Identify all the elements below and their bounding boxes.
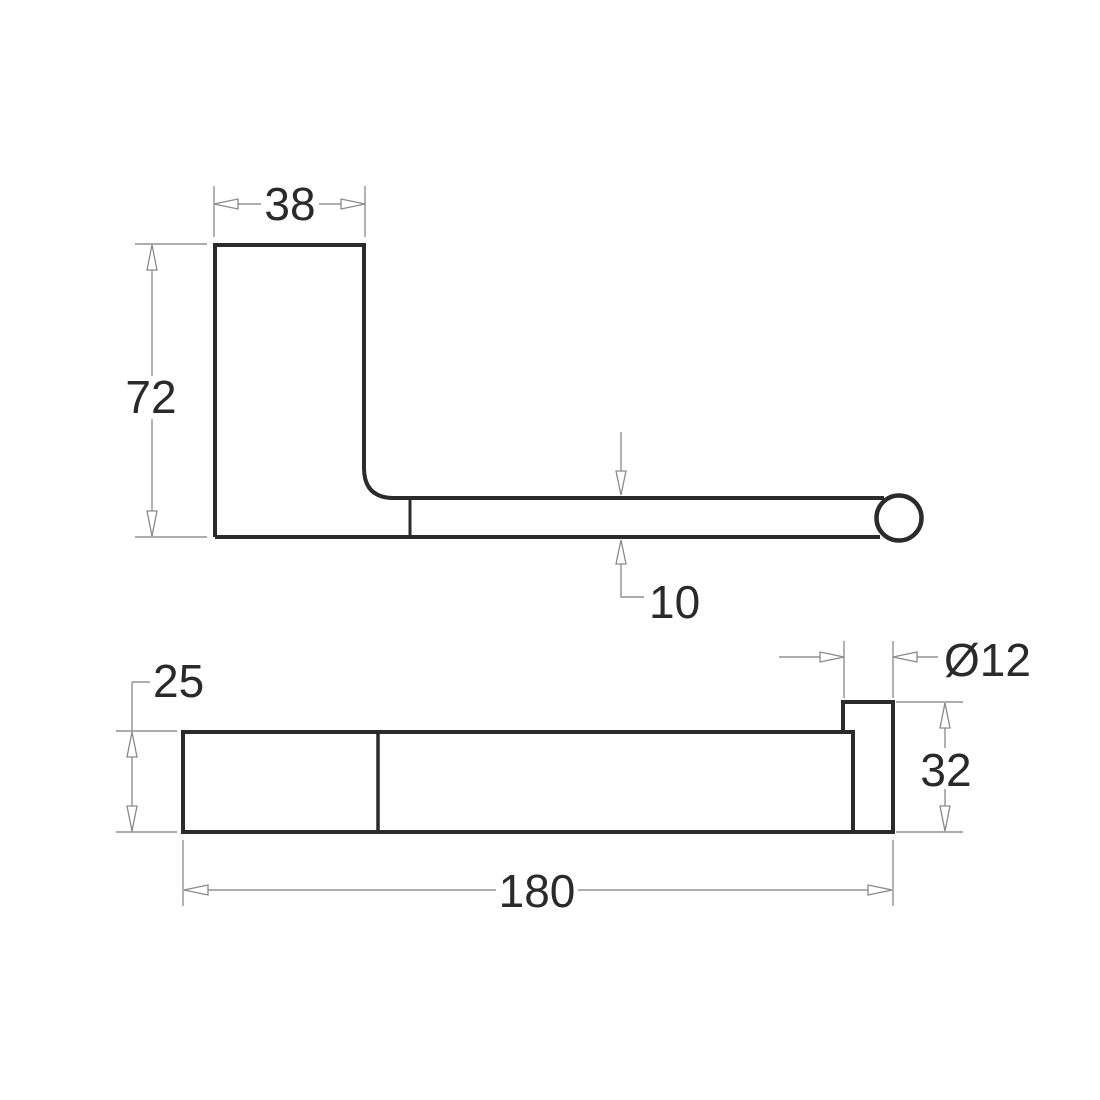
arrowhead-down xyxy=(127,806,137,831)
arrowhead-down xyxy=(940,806,950,831)
dim-end-post-height: 32 xyxy=(896,702,972,832)
technical-drawing: 38 72 10 xyxy=(0,0,1100,1100)
dim-label-arm-thickness: 10 xyxy=(649,576,700,628)
arrowhead-up xyxy=(147,245,157,270)
dim-label-plate-height: 72 xyxy=(125,371,176,423)
arrowhead-left xyxy=(214,199,238,209)
plan-view: 25 180 32 xyxy=(116,634,1031,917)
side-view: 38 72 10 xyxy=(125,178,921,628)
arrowhead-up xyxy=(940,703,950,728)
drawing-canvas: 38 72 10 xyxy=(0,0,1100,1100)
end-post-outline xyxy=(843,702,893,832)
rail-end-circle xyxy=(877,496,922,541)
arrowhead-right xyxy=(341,199,365,209)
plan-view-part xyxy=(183,702,893,832)
dim-label-plate-width: 38 xyxy=(264,178,315,230)
arrowhead-down xyxy=(616,471,626,495)
leader-line xyxy=(621,564,644,597)
arrowhead-right xyxy=(820,652,844,662)
arrowhead-up xyxy=(127,732,137,757)
dim-overall-length: 180 xyxy=(183,840,893,917)
dim-end-post-diameter: Ø12 xyxy=(779,634,1031,698)
arrowhead-left xyxy=(184,885,208,895)
dim-label-overall-length: 180 xyxy=(499,865,576,917)
dim-arm-thickness: 10 xyxy=(616,432,700,628)
arrowhead-right xyxy=(868,885,892,895)
bar-outline xyxy=(183,732,853,832)
arrowhead-down xyxy=(147,511,157,536)
dim-label-end-post-height: 32 xyxy=(920,744,971,796)
dim-bar-depth: 25 xyxy=(116,655,204,832)
dim-label-bar-depth: 25 xyxy=(153,655,204,707)
side-view-part xyxy=(215,245,922,541)
dim-label-end-post-diameter: Ø12 xyxy=(944,634,1031,686)
dim-plate-width: 38 xyxy=(214,178,365,237)
dim-plate-height: 72 xyxy=(125,244,207,537)
bracket-outline xyxy=(215,245,884,537)
arrowhead-left xyxy=(893,652,917,662)
arrowhead-up xyxy=(616,540,626,564)
